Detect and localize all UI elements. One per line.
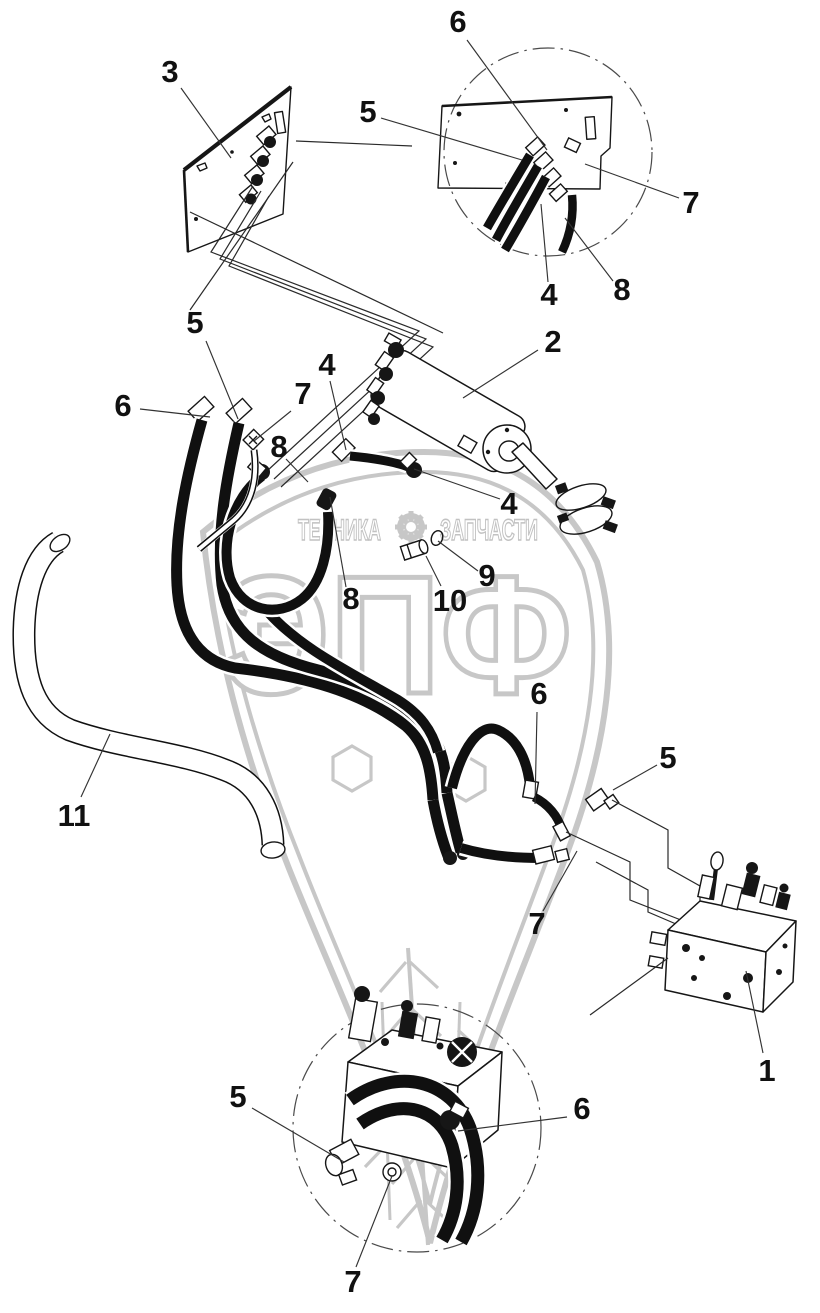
callout-label-6: 6	[530, 676, 547, 711]
callout-leader-7	[356, 1176, 392, 1267]
callout-leader-5	[381, 118, 522, 160]
callout-leader-8	[565, 218, 613, 281]
mounting-plate	[184, 87, 291, 252]
callout-label-7: 7	[528, 906, 545, 941]
callout-label-4: 4	[318, 347, 336, 382]
callout-label-7: 7	[682, 185, 699, 220]
callout-label-5: 5	[186, 305, 203, 340]
callout-label-7: 7	[294, 376, 311, 411]
callout-label-4: 4	[540, 277, 558, 312]
callout-leader-3	[181, 88, 231, 158]
callout-leader-5	[613, 765, 657, 790]
callout-label-8: 8	[342, 581, 359, 616]
parts-diagram-svg: ТЕХНИКА ЗАПЧАСТИ ЭПФ	[0, 0, 820, 1313]
plate-fittings	[239, 126, 276, 204]
callout-label-6: 6	[114, 388, 131, 423]
detail-view-bottom	[293, 986, 541, 1252]
callout-label-4: 4	[500, 486, 518, 521]
diagram-canvas: ТЕХНИКА ЗАПЧАСТИ ЭПФ	[0, 0, 820, 1313]
gear-icon	[395, 511, 427, 543]
callout-leader-2	[463, 350, 538, 398]
callout-label-5: 5	[229, 1079, 246, 1114]
detail-top-hoses	[487, 155, 573, 252]
hydraulic-cylinder	[363, 333, 618, 540]
callout-leader-5	[252, 1108, 344, 1162]
callout-label-6: 6	[449, 4, 466, 39]
clamp-assembly	[553, 479, 618, 540]
callout-label-10: 10	[433, 583, 467, 618]
callout-label-5: 5	[659, 740, 676, 775]
callout-label-1: 1	[758, 1053, 775, 1088]
callout-label-9: 9	[478, 558, 495, 593]
callout-label-2: 2	[544, 324, 561, 359]
callout-label-6: 6	[573, 1091, 590, 1126]
callout-label-11: 11	[58, 798, 91, 833]
callout-label-3: 3	[161, 54, 178, 89]
callout-label-7: 7	[344, 1264, 361, 1299]
callout-label-8: 8	[270, 429, 287, 464]
callout-leader-4	[541, 204, 548, 282]
callout-label-8: 8	[613, 272, 630, 307]
callout-leader-7	[585, 164, 679, 198]
detail-view-top	[438, 48, 652, 256]
callout-label-5: 5	[359, 94, 376, 129]
tube-runs	[190, 141, 443, 487]
